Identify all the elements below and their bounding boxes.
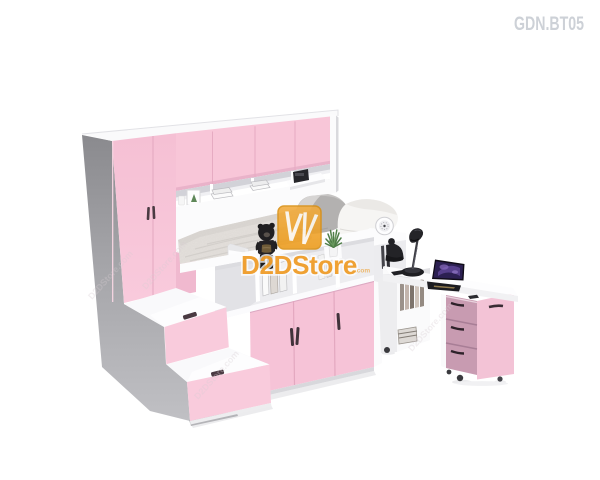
svg-text:GDN.BT05: GDN.BT05 [514, 14, 584, 35]
svg-text:D2DStore: D2DStore [241, 250, 357, 280]
svg-text:.com: .com [355, 268, 370, 275]
